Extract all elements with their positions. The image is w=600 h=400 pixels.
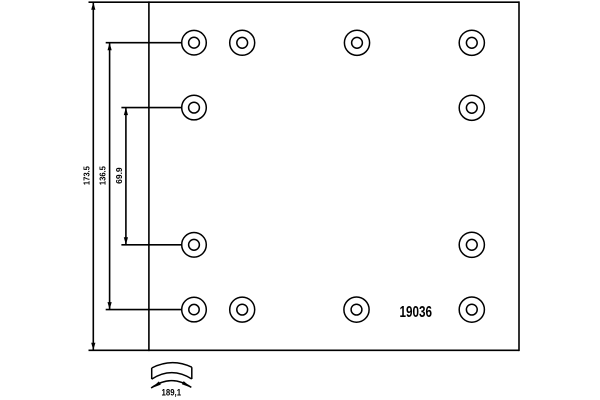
svg-text:136.5: 136.5: [98, 166, 108, 185]
svg-text:173.5: 173.5: [82, 166, 92, 185]
svg-text:69.9: 69.9: [114, 167, 124, 184]
svg-text:19036: 19036: [400, 304, 433, 321]
svg-text:189,1: 189,1: [162, 387, 182, 398]
